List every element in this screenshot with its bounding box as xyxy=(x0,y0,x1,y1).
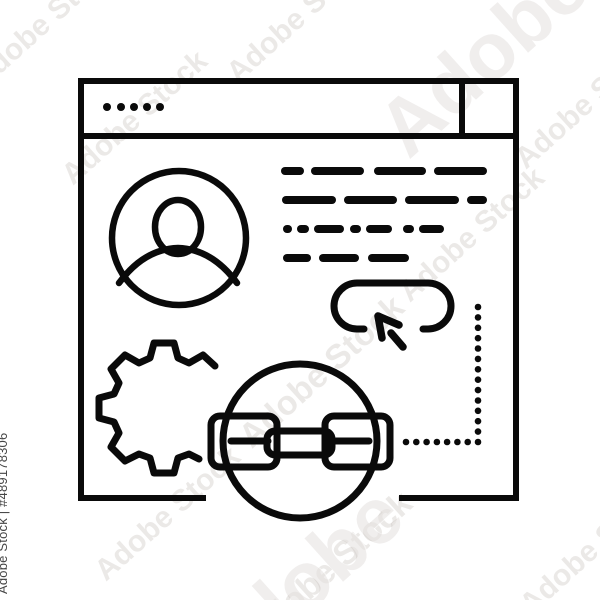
link-building-line-illustration xyxy=(0,0,600,600)
link-button xyxy=(334,283,451,347)
browser-window-outline xyxy=(81,81,516,498)
avatar-circle xyxy=(112,171,246,305)
stock-image-canvas: Adobe Stock Adobe Stock Adobe Stock Adob… xyxy=(0,0,600,600)
cursor-icon xyxy=(378,316,403,347)
browser-menu-dots xyxy=(103,103,164,111)
user-avatar-icon xyxy=(112,171,246,305)
browser-window-frame xyxy=(81,81,516,498)
text-placeholder-lines xyxy=(285,171,483,258)
gear-icon xyxy=(99,343,215,473)
chain-link-circle-icon xyxy=(211,364,390,518)
stock-credit-label: Adobe Stock | #489178306 xyxy=(0,433,10,594)
